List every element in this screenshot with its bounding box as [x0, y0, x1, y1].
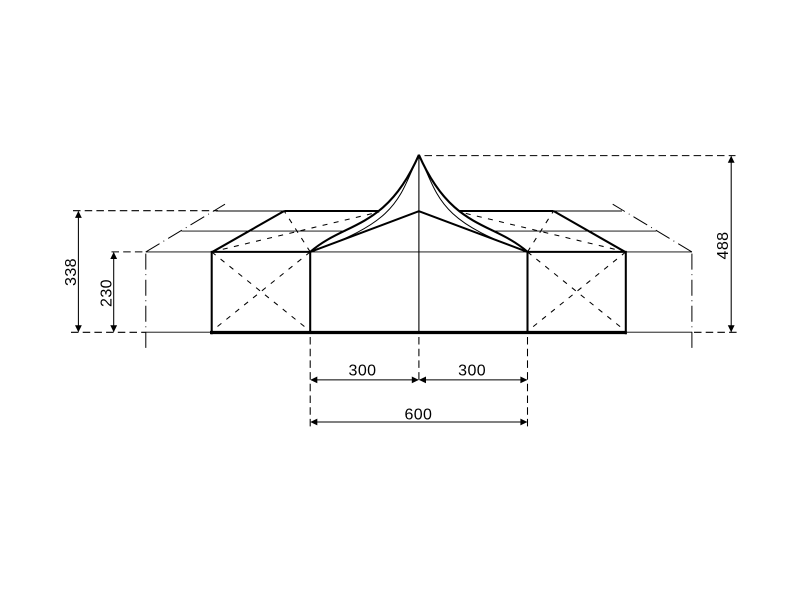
svg-text:600: 600 — [404, 407, 432, 424]
svg-text:338: 338 — [63, 258, 80, 286]
svg-text:300: 300 — [458, 363, 486, 380]
svg-text:300: 300 — [349, 363, 377, 380]
svg-text:230: 230 — [99, 279, 116, 307]
svg-text:488: 488 — [715, 232, 732, 260]
